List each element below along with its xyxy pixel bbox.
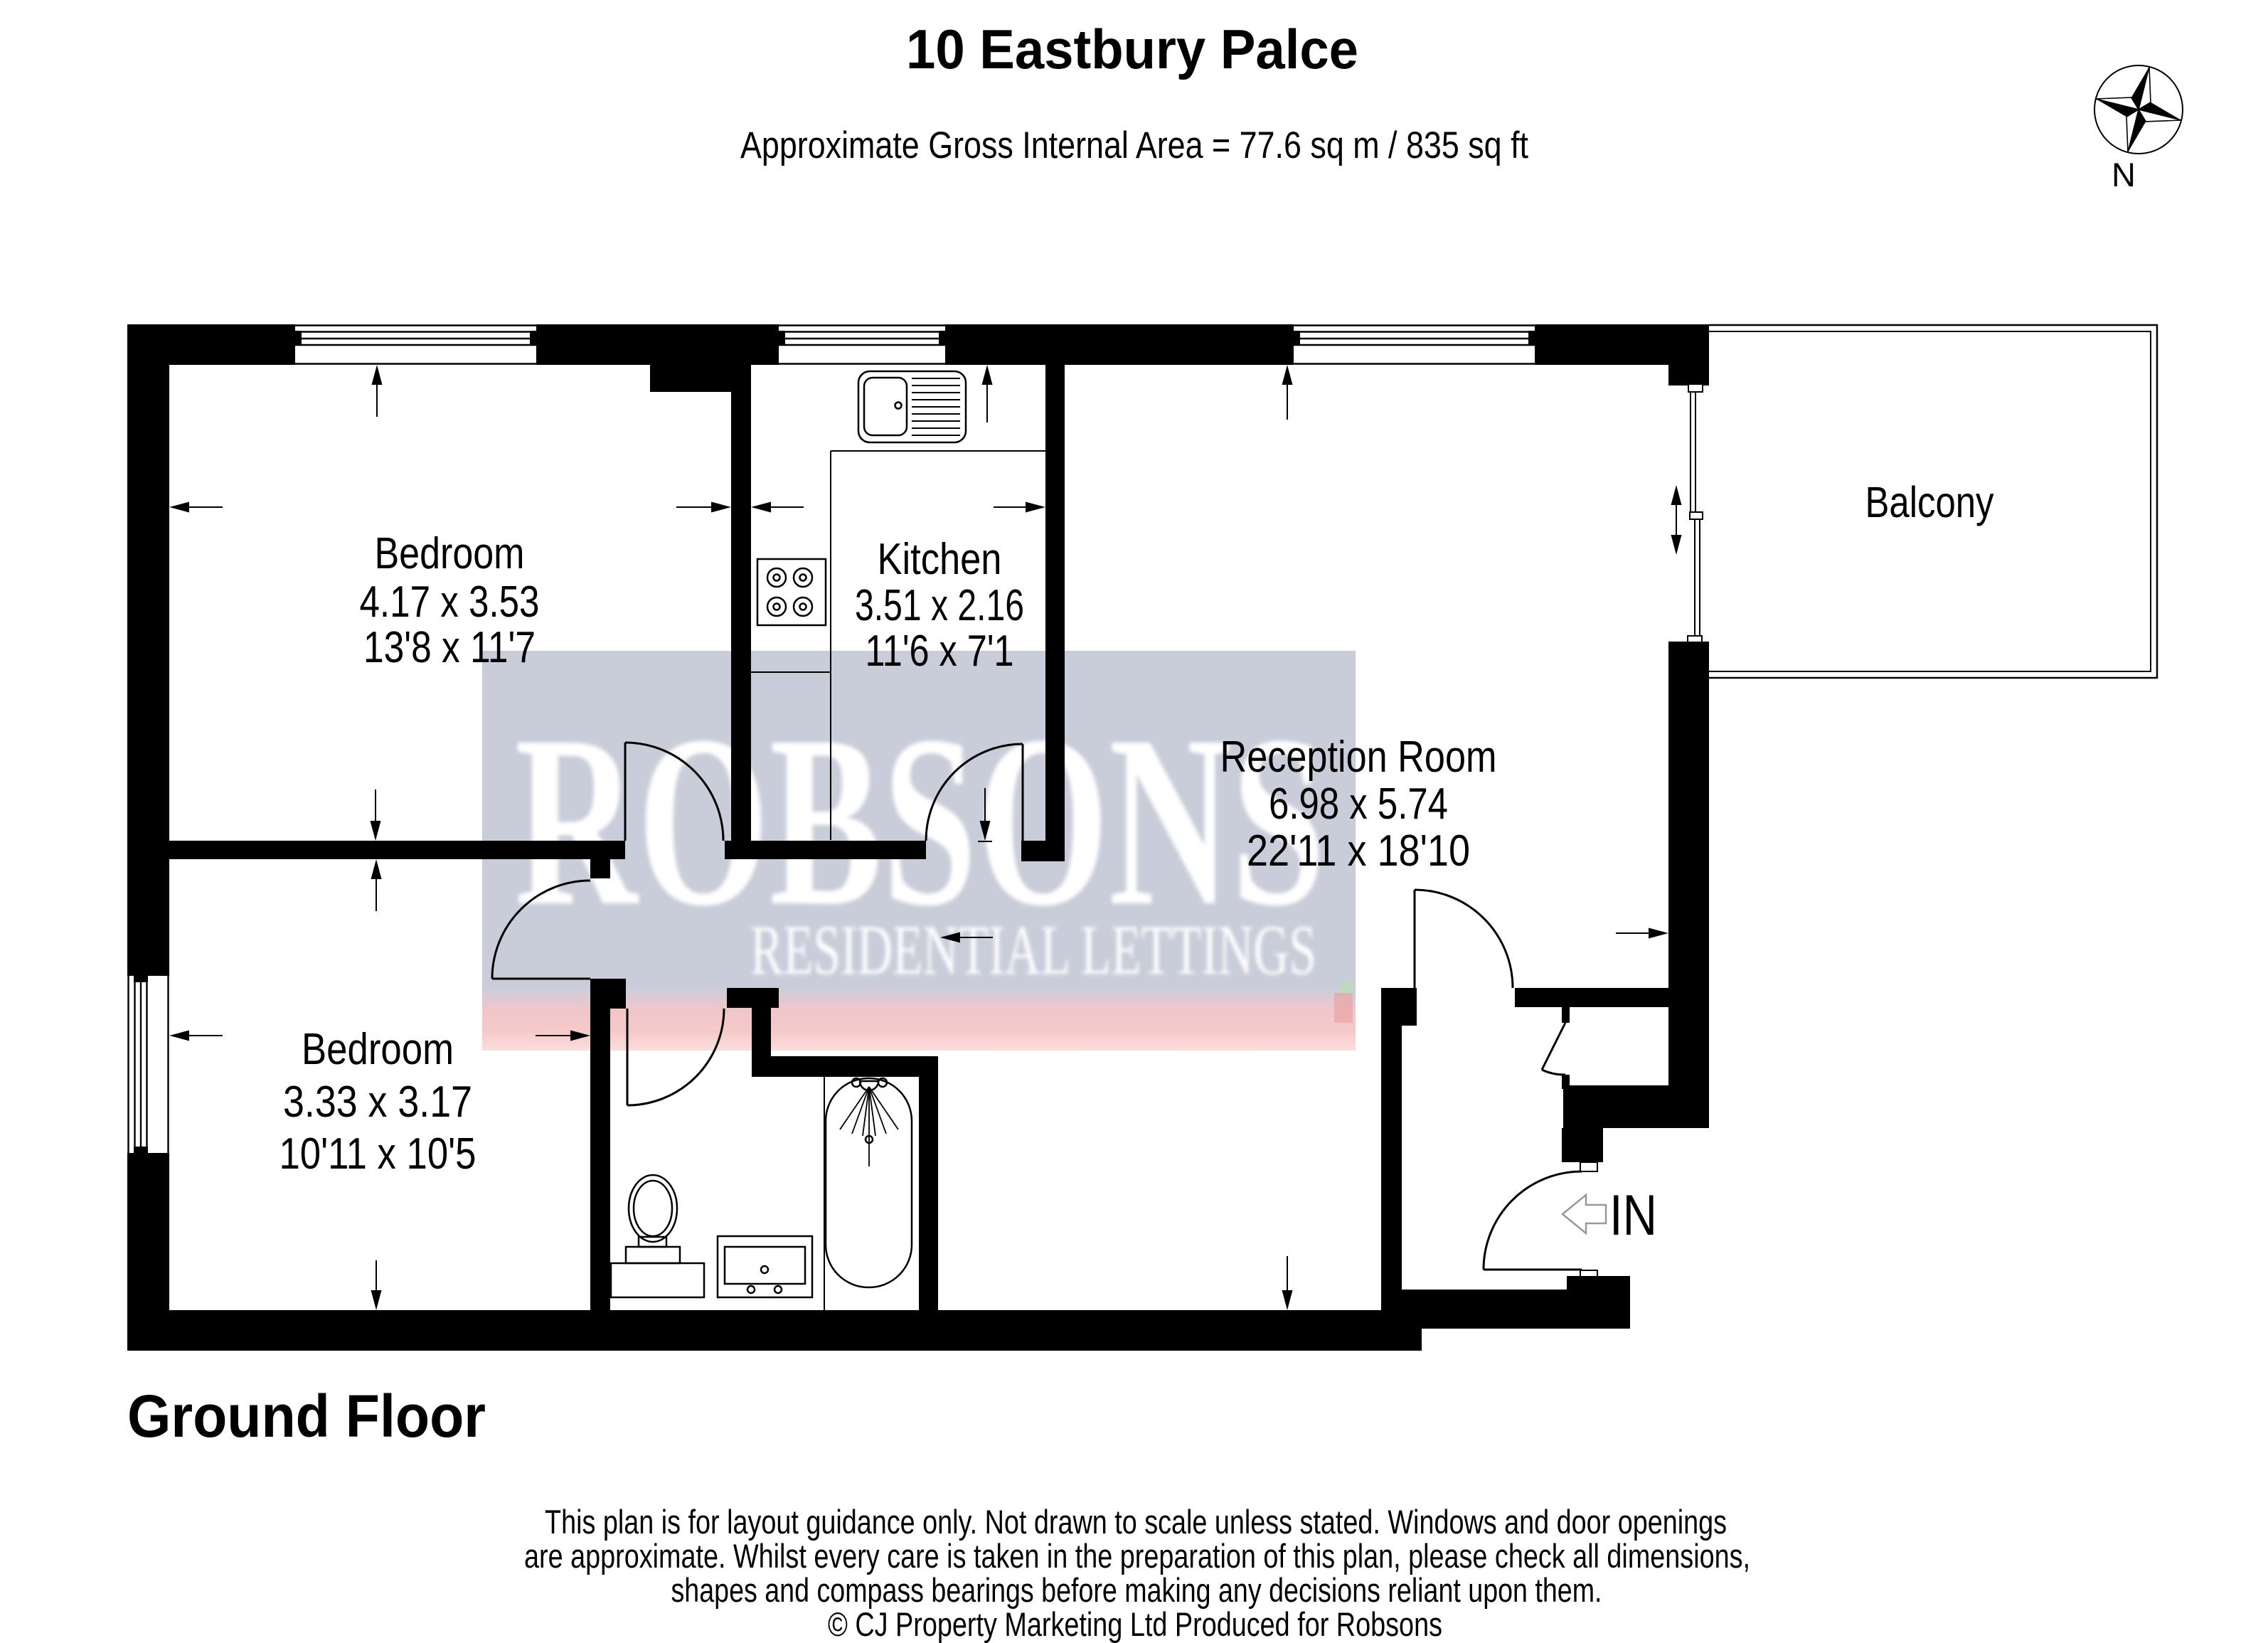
svg-text:are approximate. Whilst every: are approximate. Whilst every care is ta… [524,1537,1750,1575]
svg-text:Ground Floor: Ground Floor [127,1383,486,1450]
svg-text:shapes and compass bearings be: shapes and compass bearings before makin… [671,1571,1602,1609]
svg-text:3.51 x 2.16: 3.51 x 2.16 [855,581,1024,630]
svg-text:4.17 x 3.53: 4.17 x 3.53 [360,578,540,627]
svg-text:13'8 x 11'7: 13'8 x 11'7 [363,623,536,672]
svg-text:Balcony: Balcony [1865,478,1994,526]
svg-text:This plan is for layout guidan: This plan is for layout guidance only. N… [545,1503,1727,1541]
svg-text:© CJ Property Marketing Ltd Pr: © CJ Property Marketing Ltd Produced for… [828,1605,1442,1643]
svg-text:11'6 x 7'1: 11'6 x 7'1 [866,627,1014,676]
svg-text:10'11 x 10'5: 10'11 x 10'5 [279,1129,477,1179]
svg-text:RESIDENTIAL LETTINGS: RESIDENTIAL LETTINGS [750,910,1316,989]
svg-text:Approximate Gross Internal Are: Approximate Gross Internal Area = 77.6 s… [740,124,1528,166]
svg-text:IN: IN [1609,1184,1657,1248]
svg-text:N: N [2112,156,2136,193]
svg-text:Kitchen: Kitchen [878,535,1002,584]
svg-text:22'11 x 18'10: 22'11 x 18'10 [1247,826,1470,876]
svg-text:3.33 x 3.17: 3.33 x 3.17 [283,1078,472,1127]
svg-text:Bedroom: Bedroom [302,1025,454,1074]
svg-text:Bedroom: Bedroom [375,529,525,578]
svg-text:6.98 x 5.74: 6.98 x 5.74 [1269,780,1448,829]
svg-text:Reception Room: Reception Room [1220,733,1497,782]
svg-text:10 Eastbury Palce: 10 Eastbury Palce [906,18,1358,80]
